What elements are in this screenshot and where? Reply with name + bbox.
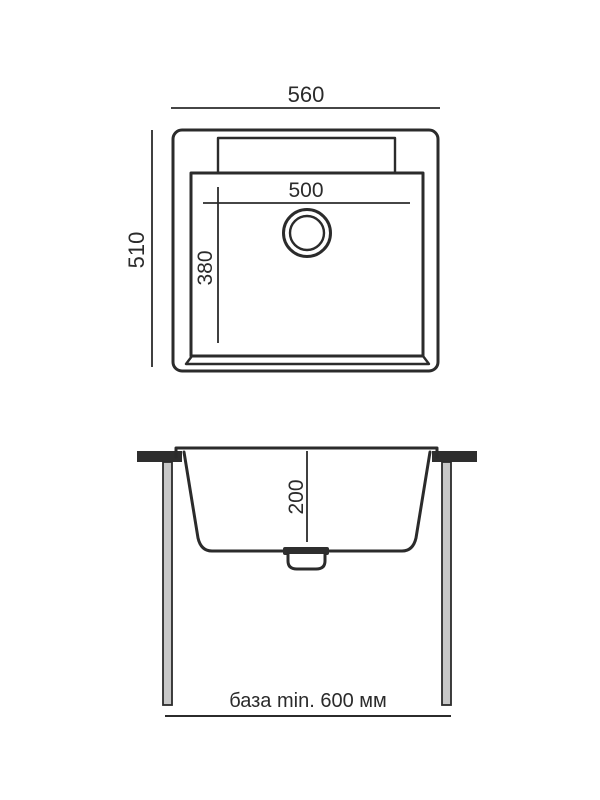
dimension-label-bowl-depth: 380 xyxy=(194,250,217,285)
dimension-overall-width: 560 xyxy=(171,82,440,108)
cabinet-right-panel xyxy=(442,462,451,705)
dimension-label-overall-width: 560 xyxy=(288,82,325,107)
dimension-label-cabinet-base: база min. 600 мм xyxy=(229,690,387,712)
dimension-label-bowl-height: 200 xyxy=(285,479,308,514)
dimension-label-bowl-width: 500 xyxy=(288,179,323,202)
dimension-label-overall-depth: 510 xyxy=(124,232,149,269)
cabinet-left-panel xyxy=(163,462,172,705)
drain-trap-cup xyxy=(288,554,325,569)
countertop-right-bar xyxy=(432,451,477,462)
top-view: 560 510 500 380 xyxy=(124,82,440,371)
sink-dimension-drawing: 560 510 500 380 xyxy=(0,0,600,800)
dimension-bowl-height: 200 xyxy=(285,451,308,542)
dimension-overall-depth: 510 xyxy=(124,130,152,367)
drawing-canvas: 560 510 500 380 xyxy=(0,0,600,800)
drain-flange xyxy=(283,547,329,555)
dimension-cabinet-base: база min. 600 мм xyxy=(165,690,451,716)
section-view: 200 база min. 600 мм xyxy=(137,448,477,716)
